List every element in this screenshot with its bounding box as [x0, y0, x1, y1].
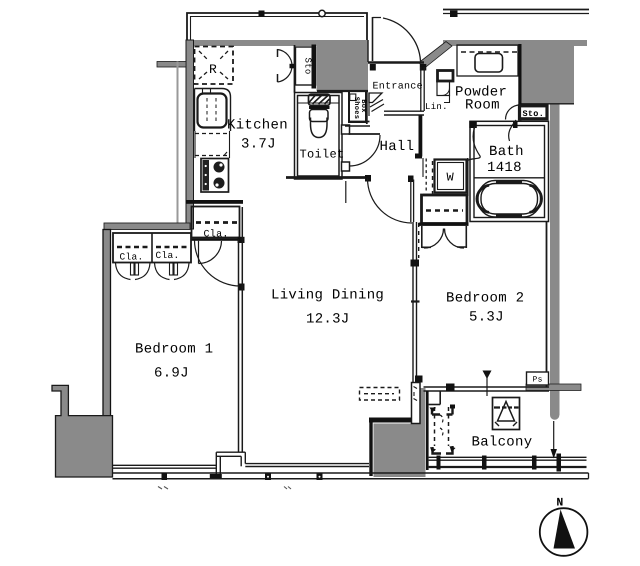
svg-text:Entrance: Entrance — [373, 82, 423, 93]
svg-text:5.3J: 5.3J — [469, 310, 504, 326]
svg-text:Box: Box — [359, 99, 367, 113]
svg-text:Ps: Ps — [533, 376, 543, 385]
svg-text:R: R — [209, 62, 217, 77]
svg-text:Sto: Sto — [303, 57, 313, 74]
svg-text:3.7J: 3.7J — [241, 137, 276, 153]
svg-text:Sto.: Sto. — [523, 109, 545, 119]
svg-text:Cla.: Cla. — [204, 229, 229, 241]
svg-text:N: N — [556, 497, 563, 510]
svg-text:Bedroom 2: Bedroom 2 — [446, 291, 524, 307]
svg-text:12.3J: 12.3J — [306, 312, 350, 328]
svg-text:Cla.: Cla. — [120, 252, 144, 263]
svg-text:Cla.: Cla. — [156, 250, 180, 261]
svg-text:Room: Room — [465, 98, 500, 114]
svg-text:W: W — [447, 171, 455, 185]
svg-text:Bedroom 1: Bedroom 1 — [135, 342, 213, 358]
svg-text:6.9J: 6.9J — [154, 366, 189, 382]
svg-text:Living Dining: Living Dining — [271, 288, 384, 304]
svg-text:Hall: Hall — [380, 139, 415, 155]
svg-text:Kitchen: Kitchen — [227, 118, 288, 134]
svg-text:Balcony: Balcony — [472, 435, 533, 451]
svg-text:Bath: Bath — [489, 144, 524, 160]
svg-text:Toilet: Toilet — [300, 148, 345, 162]
svg-text:Lin.: Lin. — [425, 102, 448, 112]
svg-text:1418: 1418 — [487, 160, 522, 176]
